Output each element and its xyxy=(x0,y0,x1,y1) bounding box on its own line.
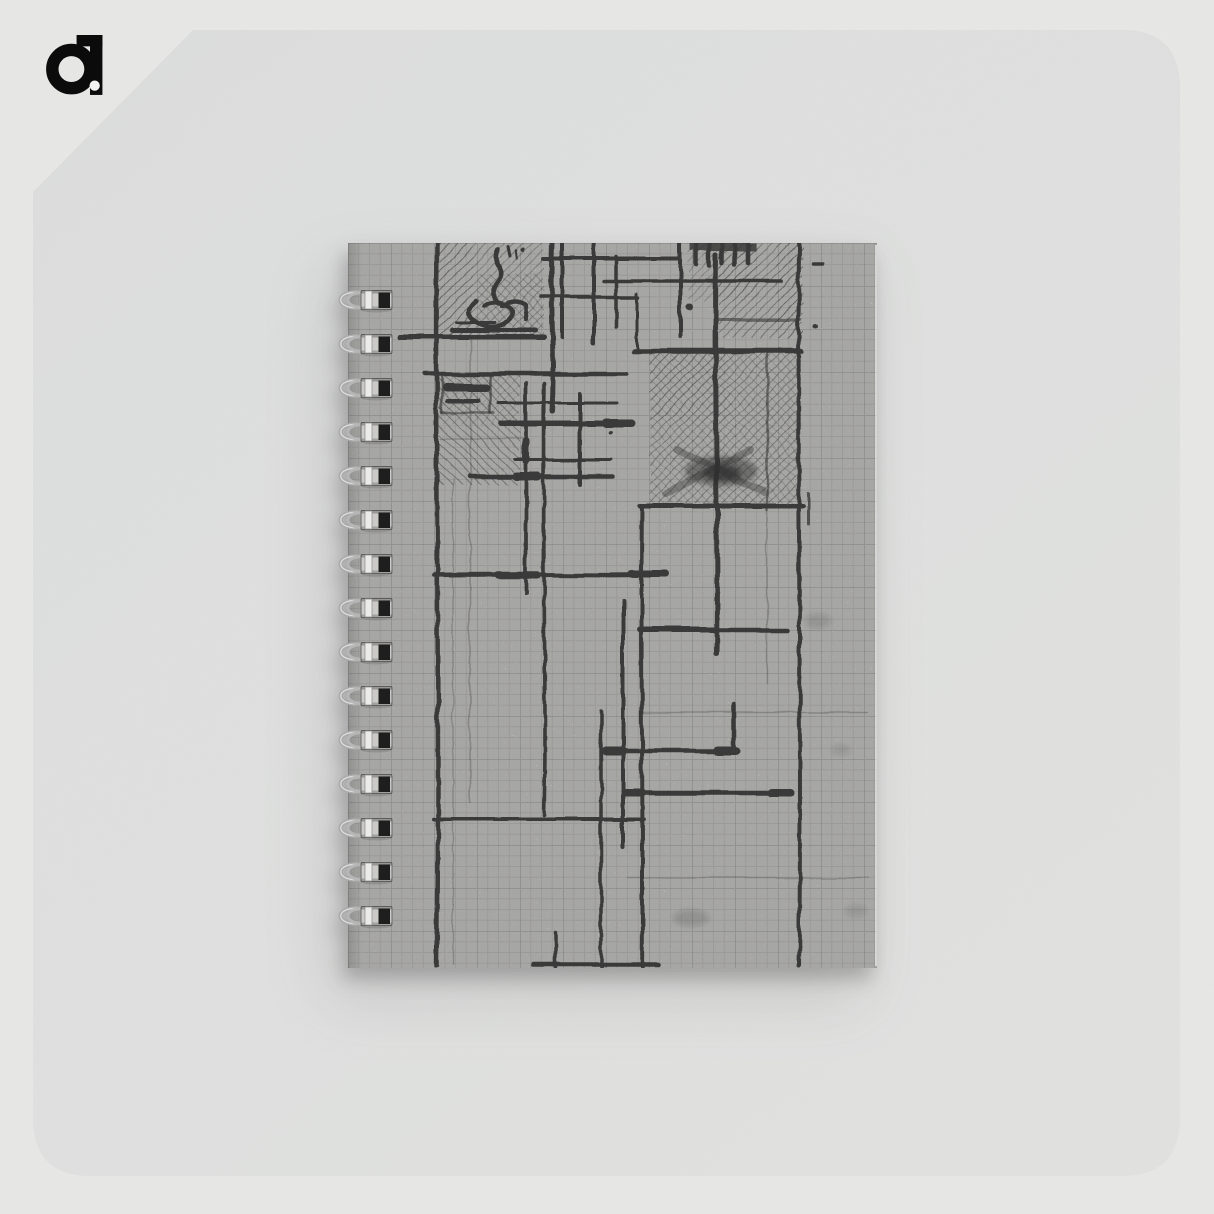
logo-dot xyxy=(90,80,100,90)
cover-right-rim xyxy=(875,245,877,966)
spiral-binding xyxy=(341,291,392,929)
logo-bowl xyxy=(52,50,90,88)
artvee-logo: a. xyxy=(45,35,103,97)
page-background: a. xyxy=(0,0,1214,1214)
notebook-mockup xyxy=(308,243,877,968)
